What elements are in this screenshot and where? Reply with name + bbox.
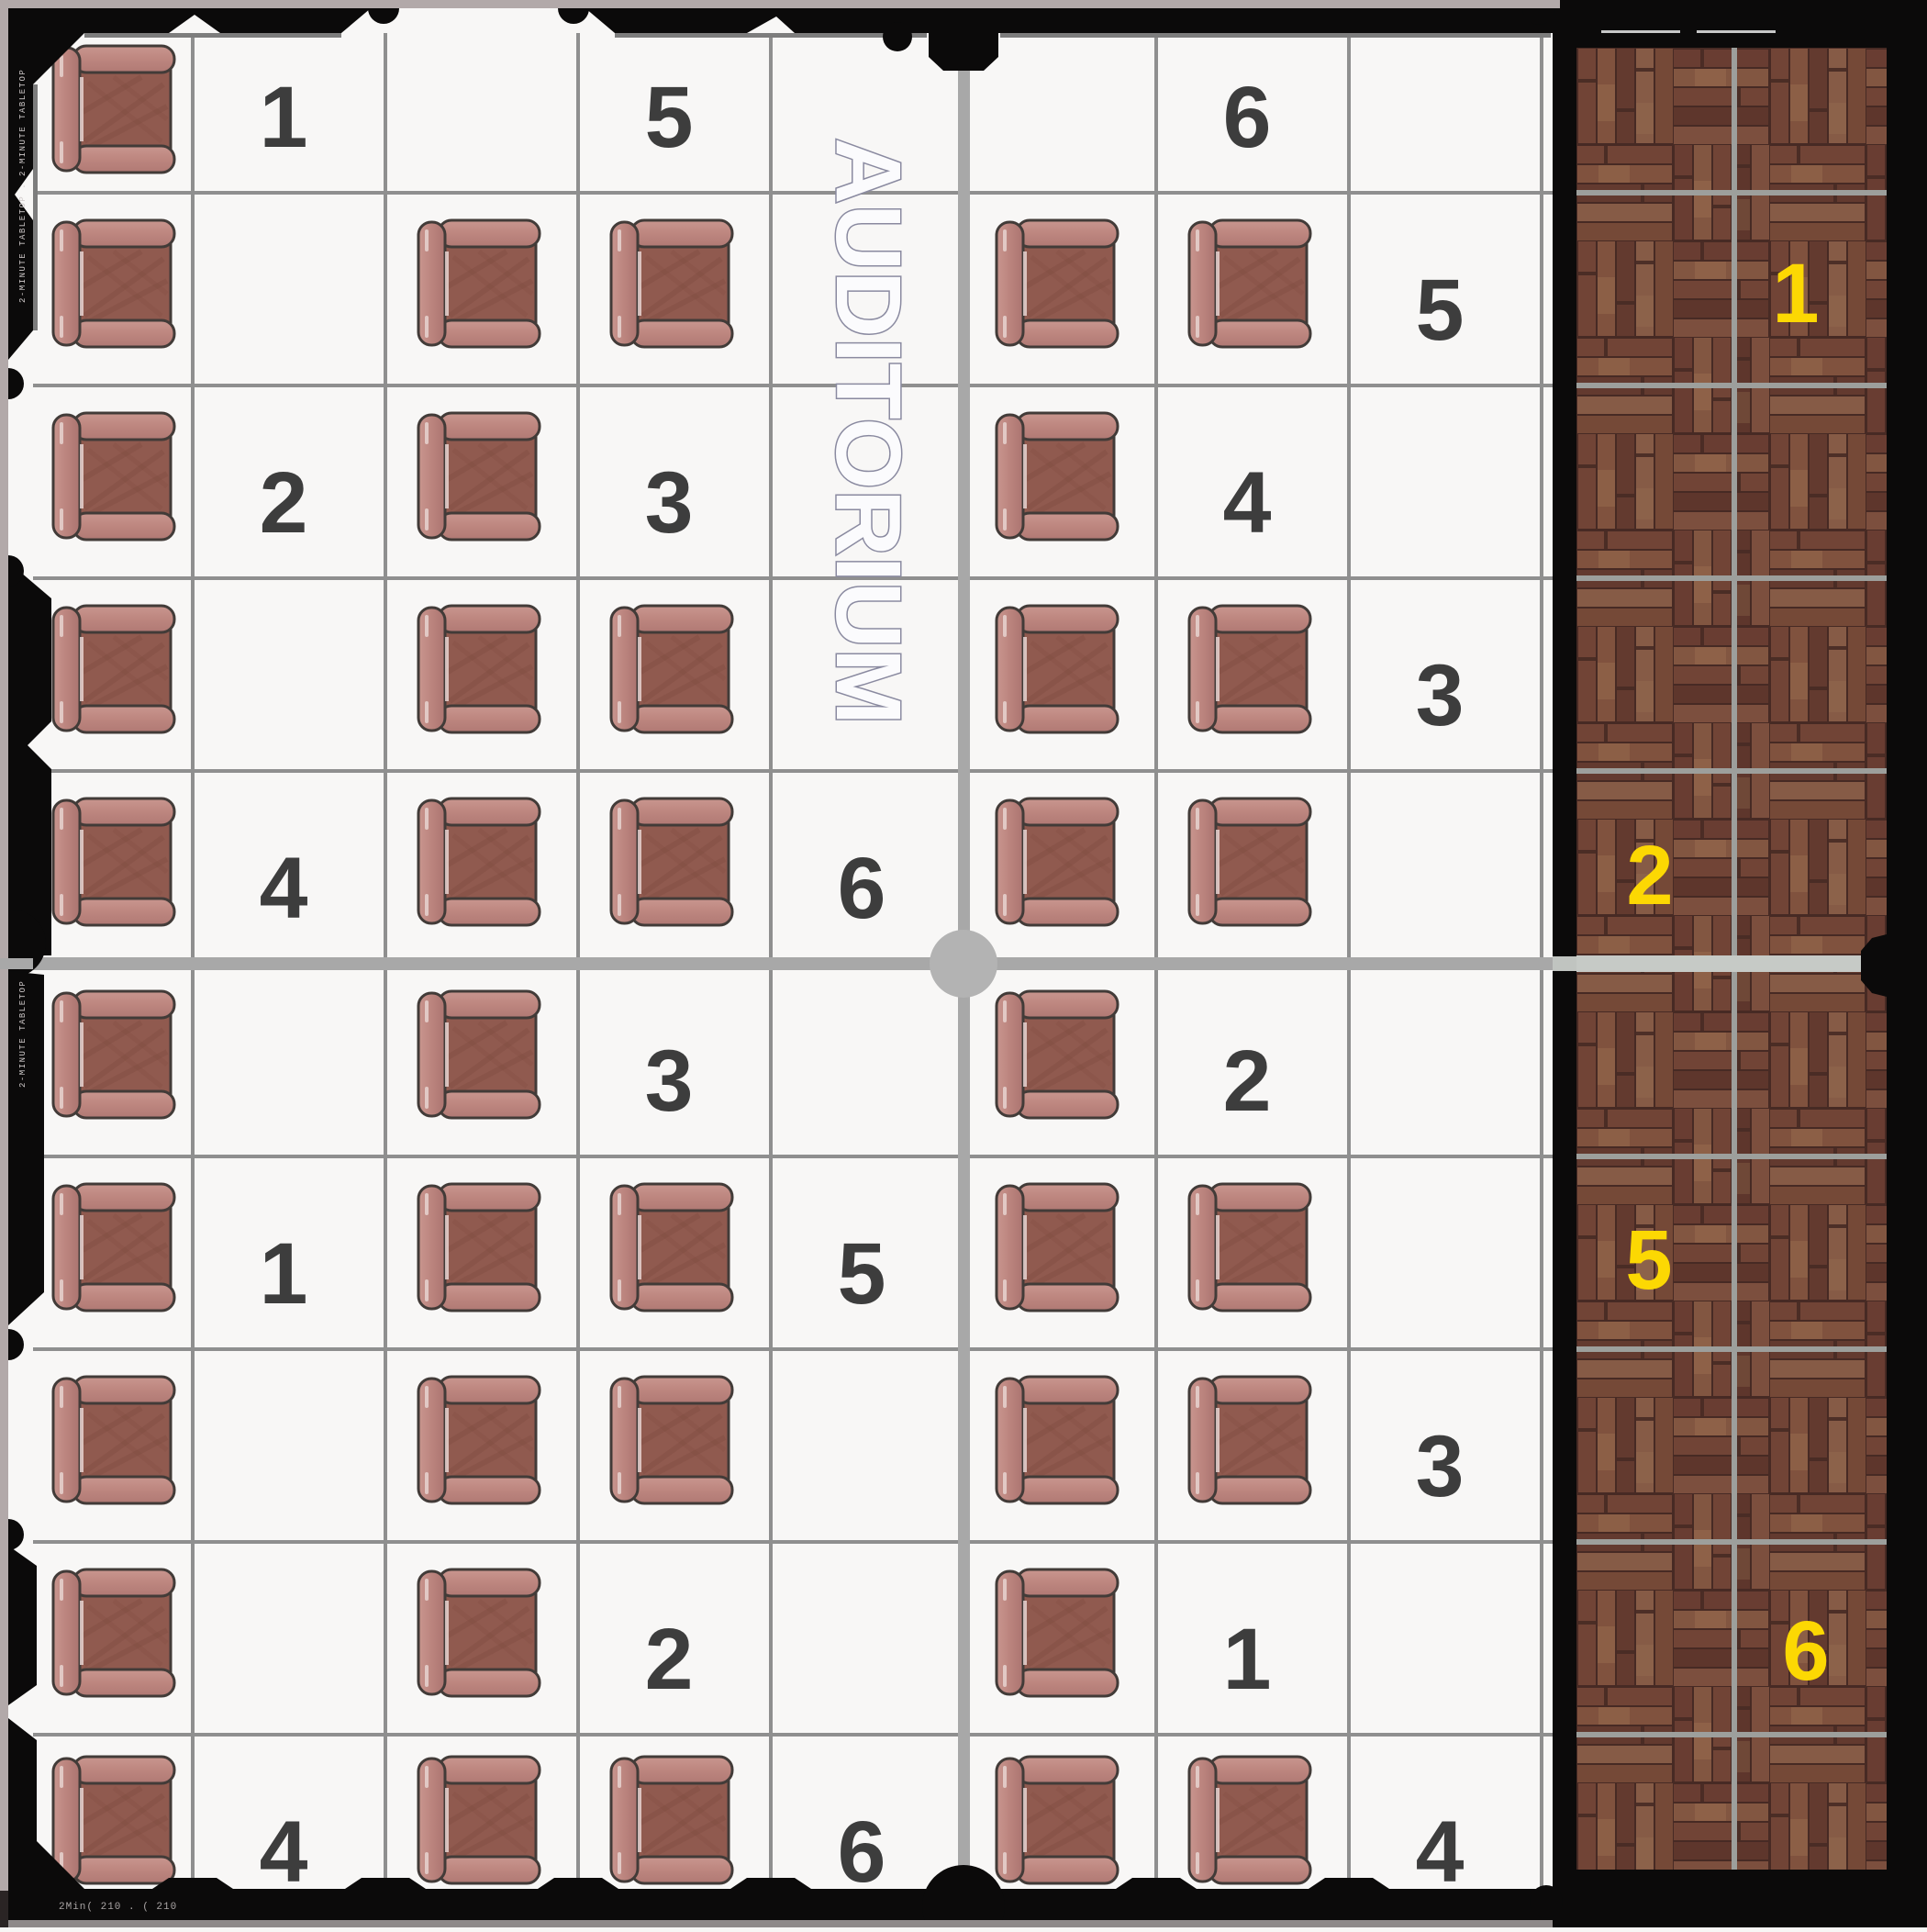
svg-text:6: 6 [1782, 1604, 1829, 1698]
svg-text:1: 1 [260, 1225, 308, 1323]
svg-text:4: 4 [260, 840, 308, 937]
svg-text:4: 4 [1223, 454, 1272, 552]
svg-text:6: 6 [838, 840, 886, 937]
svg-text:6: 6 [1223, 69, 1272, 166]
svg-text:2: 2 [1223, 1033, 1272, 1130]
svg-text:2Min( 210 . ( 210: 2Min( 210 . ( 210 [59, 1902, 177, 1913]
svg-text:5: 5 [1625, 1213, 1672, 1307]
svg-text:1: 1 [1223, 1611, 1272, 1708]
svg-text:3: 3 [645, 1033, 694, 1130]
svg-text:5: 5 [645, 69, 694, 166]
svg-text:3: 3 [1416, 647, 1465, 744]
svg-text:2: 2 [645, 1611, 694, 1708]
svg-text:AUDITORIUM: AUDITORIUM [817, 138, 919, 725]
svg-text:2: 2 [1626, 829, 1673, 922]
svg-text:3: 3 [1416, 1418, 1465, 1515]
svg-text:2-MINUTE TABLETOP: 2-MINUTE TABLETOP [18, 980, 28, 1088]
svg-text:2-MINUTE TABLETOP . 2-MINUTE T: 2-MINUTE TABLETOP . 2-MINUTE TABLETOP [18, 69, 28, 303]
svg-text:6: 6 [838, 1804, 886, 1901]
svg-text:3: 3 [645, 454, 694, 552]
svg-text:1: 1 [260, 69, 308, 166]
svg-text:2: 2 [260, 454, 308, 552]
svg-text:1: 1 [1772, 247, 1819, 341]
svg-text:5: 5 [838, 1225, 886, 1323]
svg-text:4: 4 [260, 1804, 308, 1901]
svg-text:4: 4 [1416, 1804, 1465, 1901]
svg-text:5: 5 [1416, 262, 1465, 359]
